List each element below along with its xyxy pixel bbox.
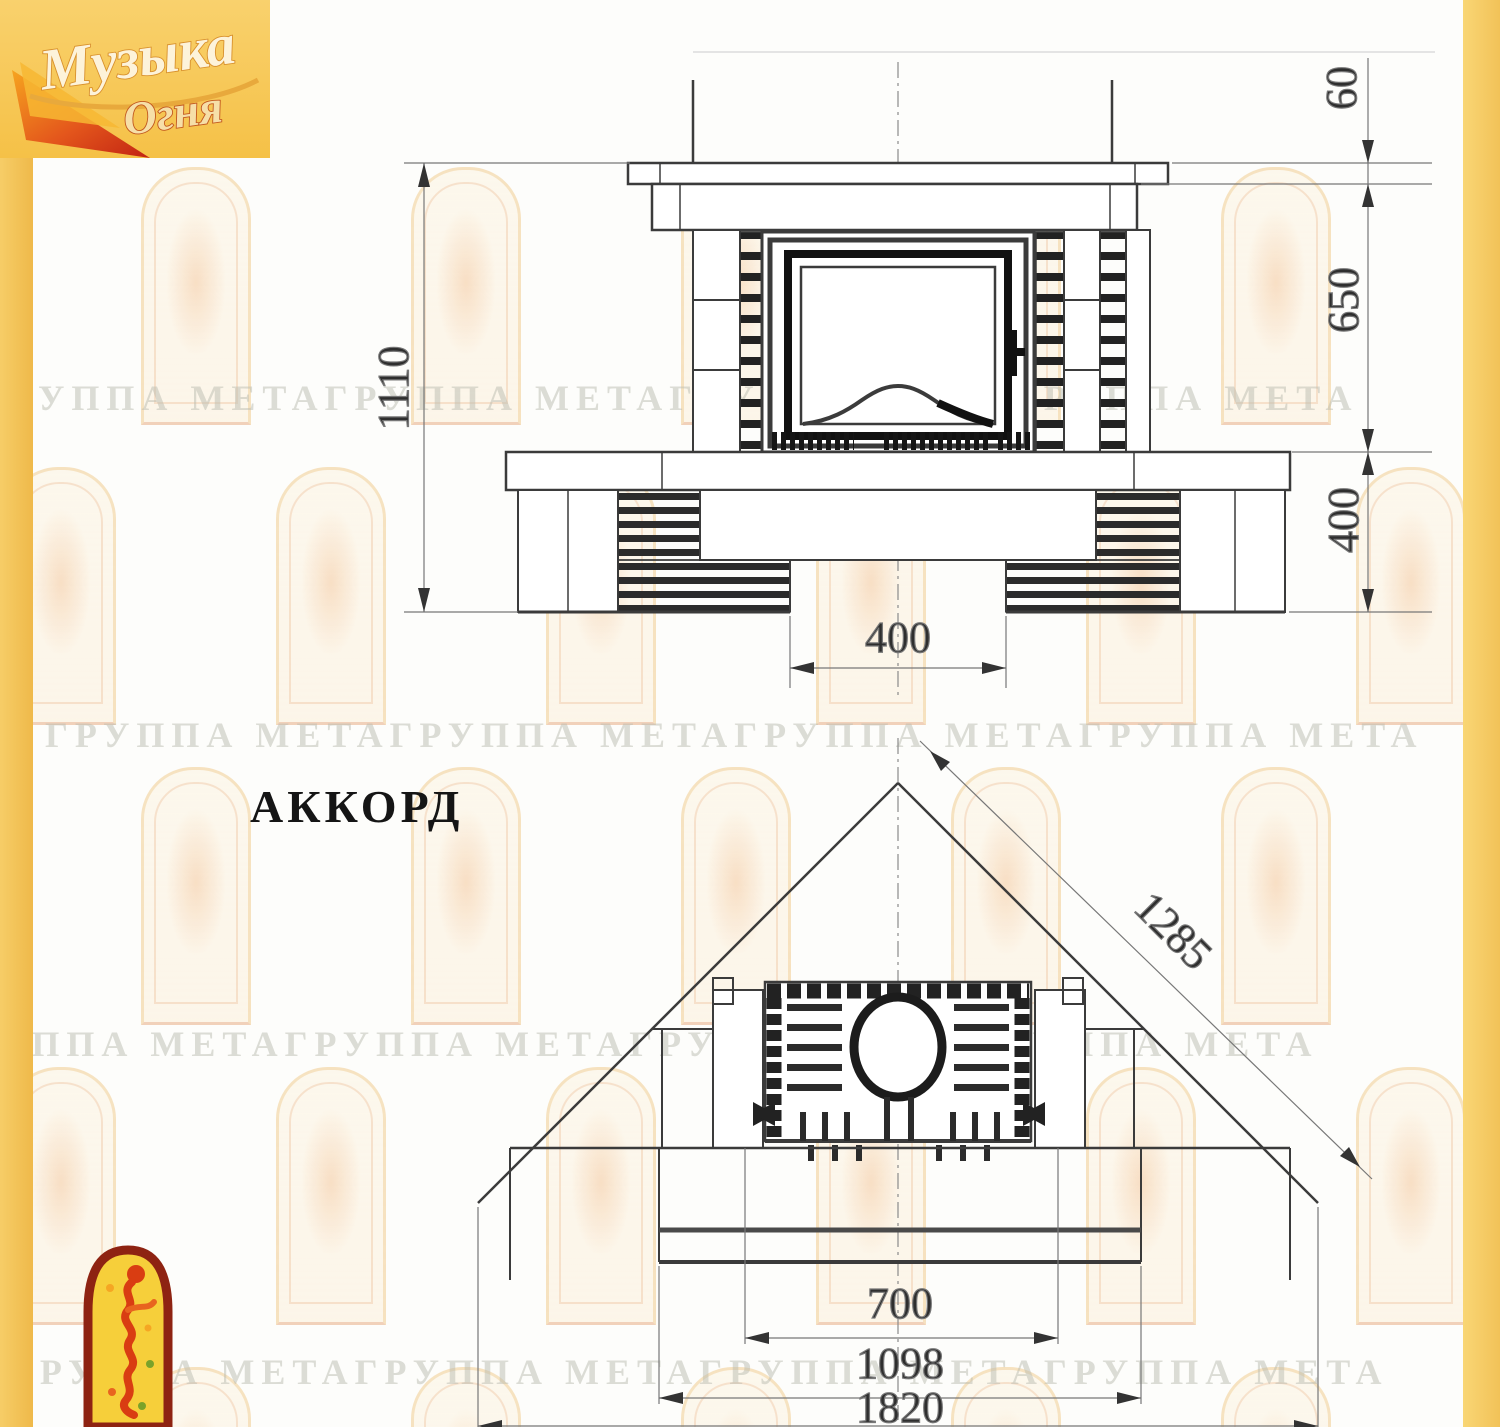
plan-hearth-bench xyxy=(510,1148,1290,1280)
right-edge-strip xyxy=(1126,230,1150,452)
dimension-label-firebox-zone: 650 xyxy=(1319,267,1368,333)
dimension-label-bottom-gap: 400 xyxy=(865,613,931,662)
right-column-blocks xyxy=(1064,230,1100,452)
dimension-label-base: 400 xyxy=(1319,487,1368,553)
brand-word-2: Огня xyxy=(120,80,226,144)
dimension-label-diagonal: 1285 xyxy=(1125,882,1222,979)
brand-logo-art: Музыка Огня xyxy=(0,0,270,158)
dimension-label-crown: 60 xyxy=(1317,66,1366,110)
right-outer-brick-strip xyxy=(1100,232,1126,452)
flame-emblem xyxy=(80,1240,176,1427)
flue-outlet-circle xyxy=(854,997,942,1097)
left-column-blocks xyxy=(693,230,740,452)
dimension-label-opening: 700 xyxy=(867,1279,933,1328)
emblem-spark xyxy=(106,1284,114,1292)
dimension-label-body-width: 1098 xyxy=(856,1339,944,1388)
emblem-spark xyxy=(108,1388,116,1396)
emblem-spark xyxy=(146,1360,154,1368)
right-inner-brick-strip xyxy=(1036,232,1064,452)
dimension-label-overall-width: 1820 xyxy=(856,1383,944,1427)
emblem-spark xyxy=(145,1325,152,1332)
plan-firebox xyxy=(753,982,1045,1161)
brand-logo: Музыка Огня xyxy=(0,0,270,158)
hearth-shelf xyxy=(506,452,1290,490)
drawing-page: ГРУППА МЕТАГРУППА МЕТАГРУППА МЕТАГРУППА … xyxy=(0,0,1500,1427)
flame-emblem-art xyxy=(80,1240,176,1427)
firebox-insert xyxy=(762,232,1034,452)
door-handle-knob xyxy=(1013,348,1025,356)
technical-drawing: 1110 60 650 400 400 xyxy=(0,0,1500,1427)
front-view xyxy=(506,52,1435,700)
dimension-label-total-height: 1110 xyxy=(369,346,418,431)
mantel-lower-slab xyxy=(652,184,1137,230)
mantel-crown-slab xyxy=(628,163,1168,184)
emblem-spark xyxy=(138,1402,146,1410)
base xyxy=(518,490,1285,612)
